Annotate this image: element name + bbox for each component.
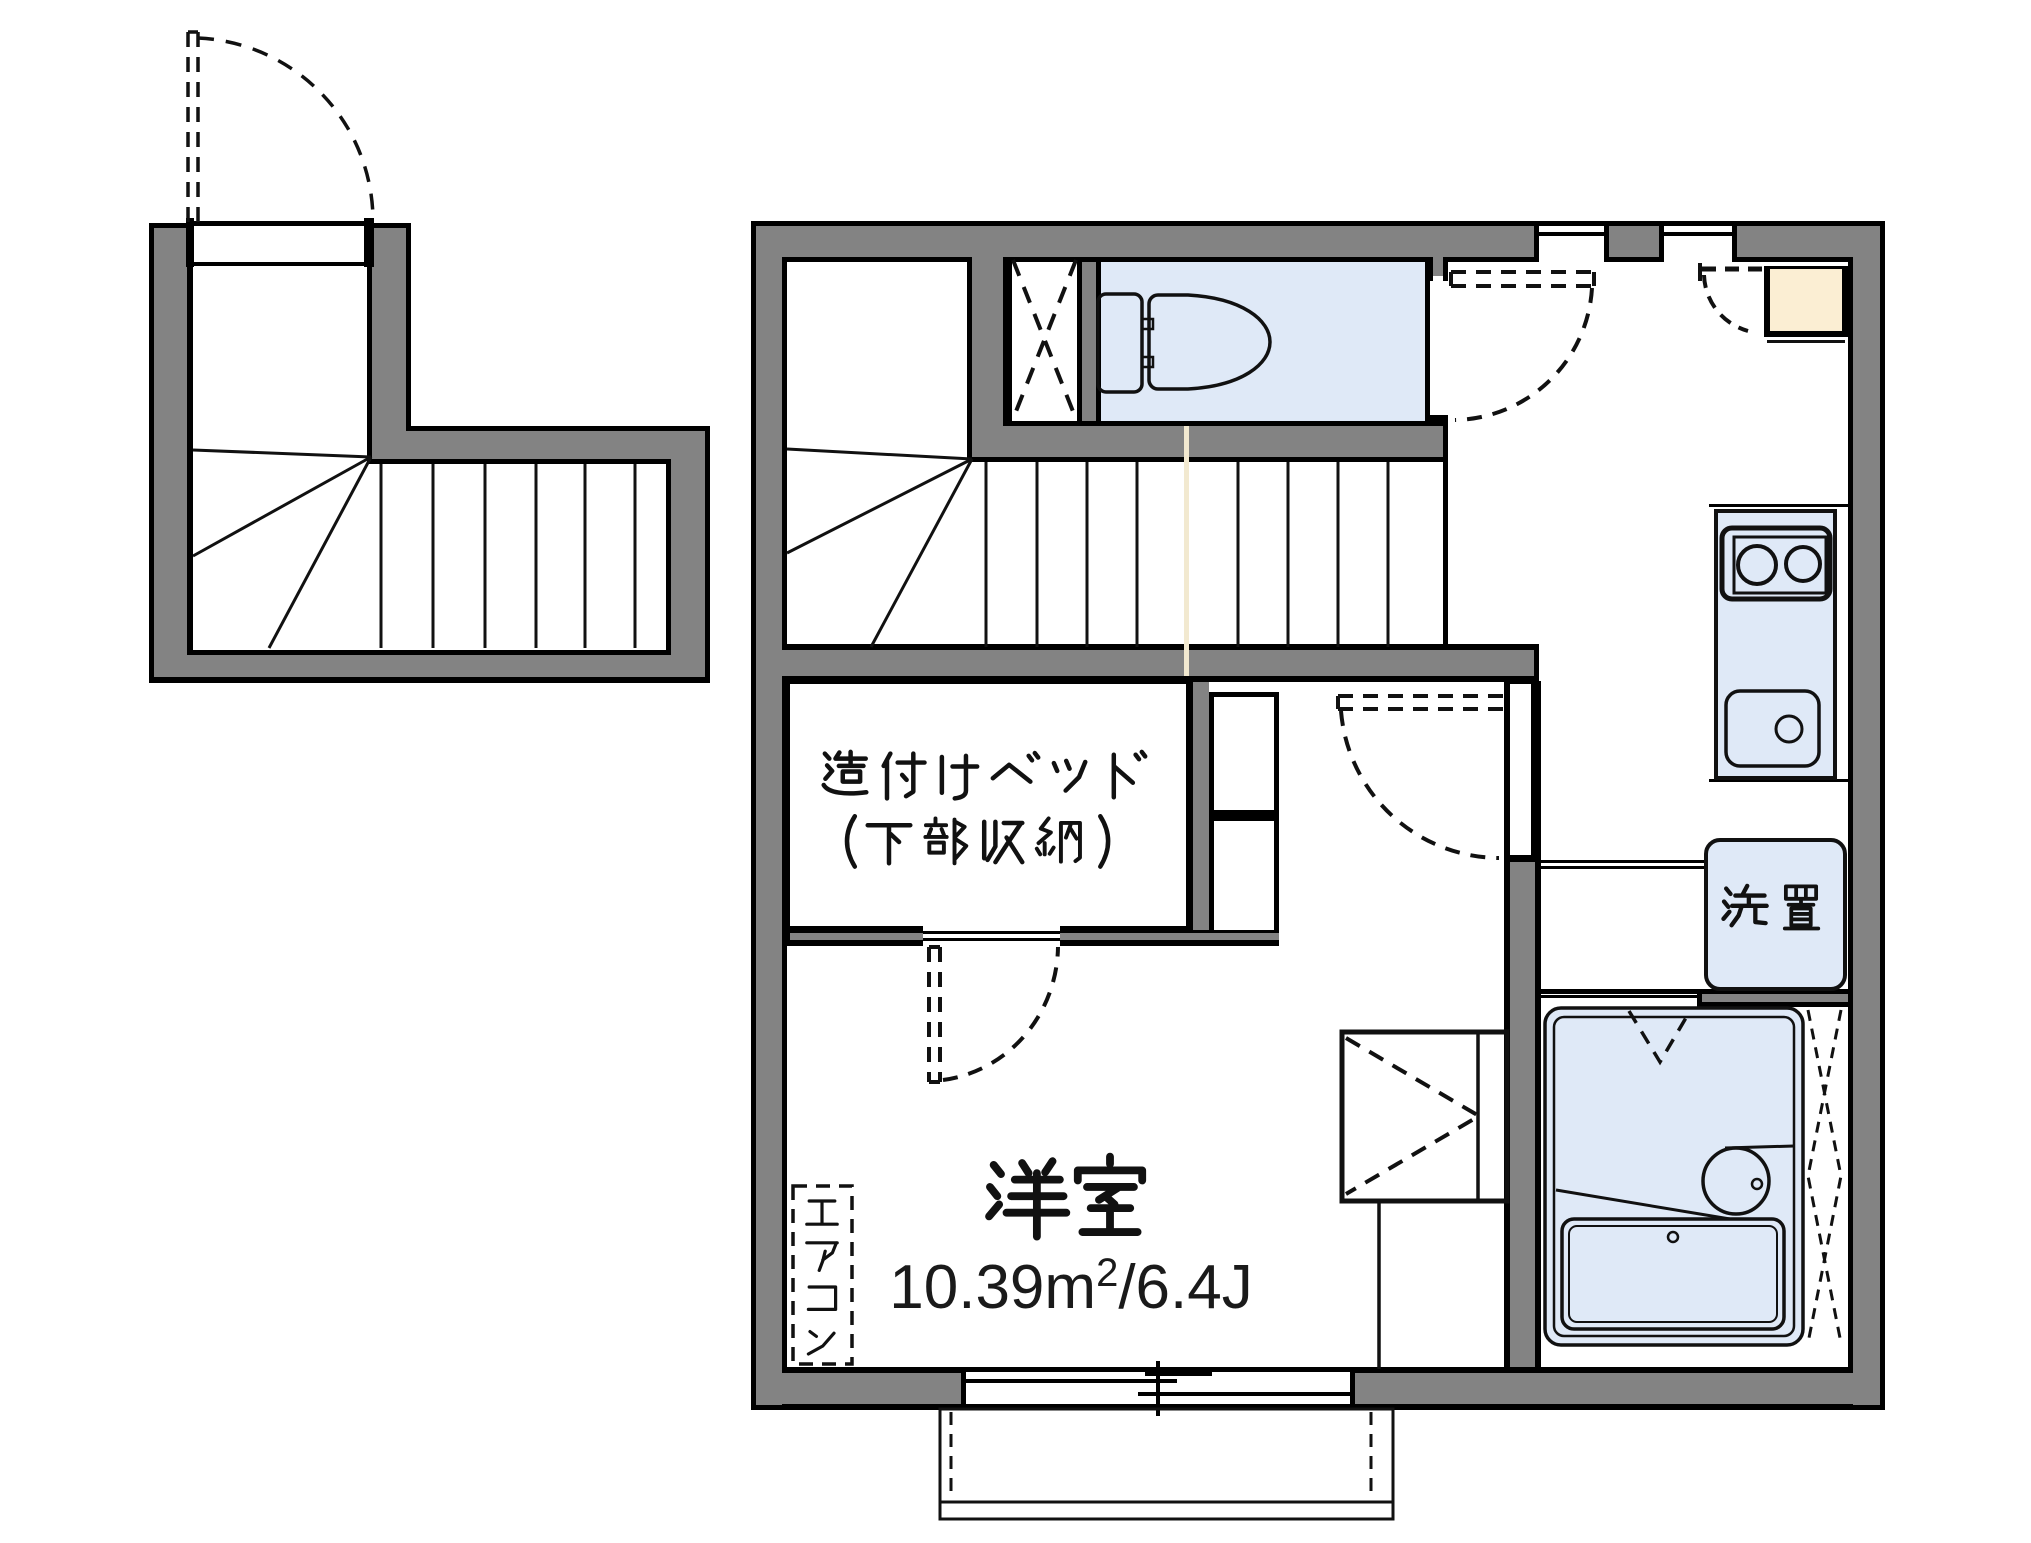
svg-text:10.39m2/6.4J: 10.39m2/6.4J <box>889 1251 1252 1322</box>
